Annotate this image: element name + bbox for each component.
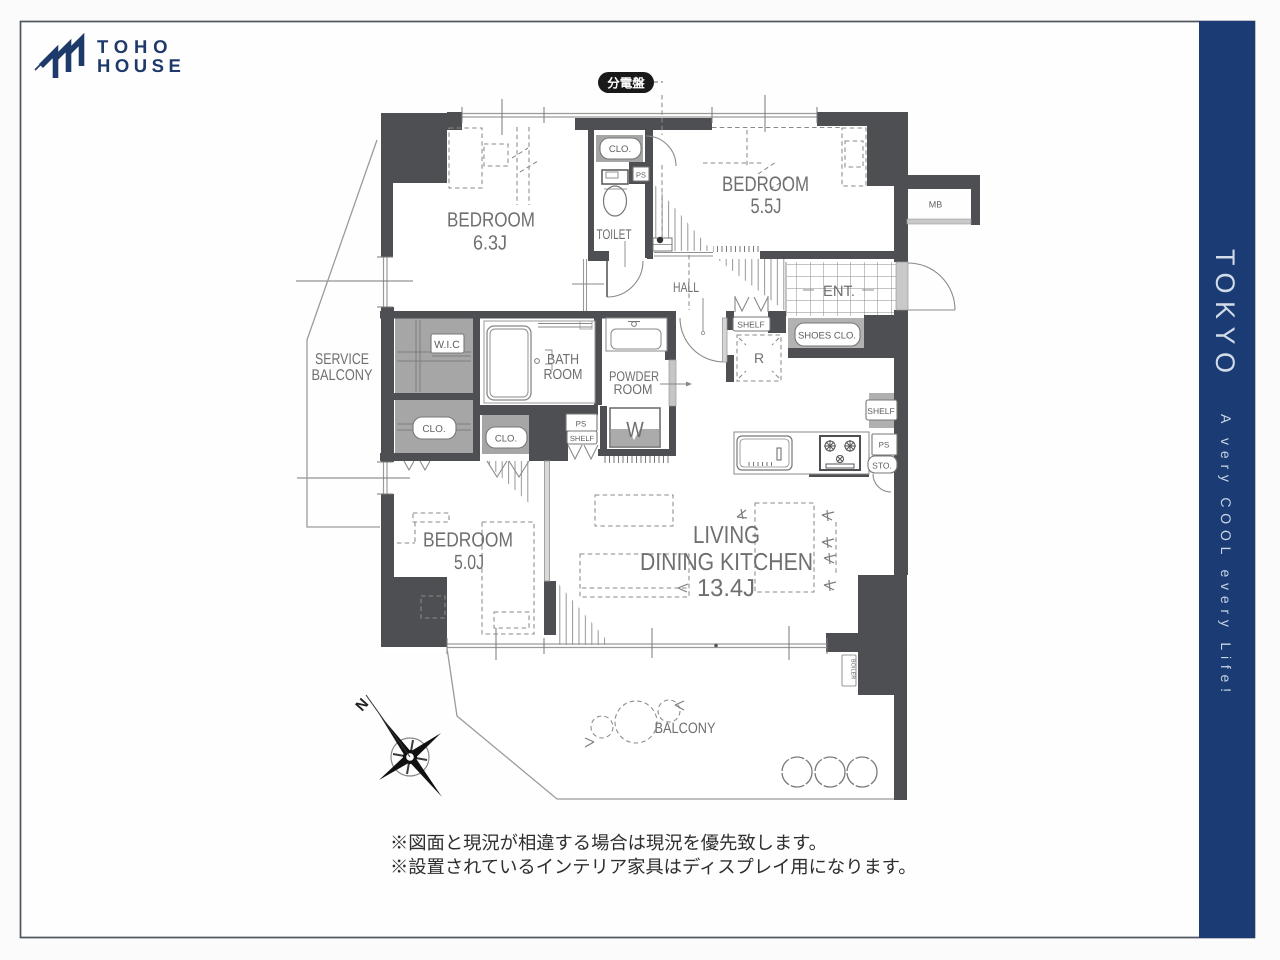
svg-text:BEDROOM: BEDROOM — [722, 173, 809, 196]
svg-text:HOUSE: HOUSE — [97, 55, 185, 76]
svg-text:MB: MB — [929, 200, 943, 210]
svg-text:SHOES CLO.: SHOES CLO. — [798, 331, 856, 342]
svg-text:ROOM: ROOM — [544, 367, 583, 383]
svg-text:SHELF: SHELF — [737, 320, 764, 330]
svg-text:BALCONY: BALCONY — [312, 367, 373, 384]
svg-text:13.4J: 13.4J — [697, 575, 755, 602]
svg-text:SHELF: SHELF — [867, 406, 894, 416]
svg-text:BATH: BATH — [547, 352, 579, 368]
svg-text:ROOM: ROOM — [614, 381, 653, 397]
svg-text:BEDROOM: BEDROOM — [423, 529, 513, 552]
svg-text:BEDROOM: BEDROOM — [447, 209, 535, 232]
svg-text:BOILER: BOILER — [850, 659, 856, 679]
svg-text:LIVING: LIVING — [693, 522, 760, 549]
svg-text:BALCONY: BALCONY — [655, 720, 716, 737]
svg-text:SERVICE: SERVICE — [315, 351, 369, 368]
svg-text:W.I.C: W.I.C — [434, 339, 460, 351]
svg-text:※設置されているインテリア家具はディスプレイ用になります。: ※設置されているインテリア家具はディスプレイ用になります。 — [390, 857, 917, 877]
svg-text:CLO.: CLO. — [609, 144, 631, 155]
svg-text:TOHO: TOHO — [97, 36, 173, 57]
svg-text:6.3J: 6.3J — [473, 232, 507, 255]
svg-text:DINING KITCHEN: DINING KITCHEN — [640, 549, 813, 576]
svg-text:CLO.: CLO. — [422, 424, 445, 435]
svg-text:STO.: STO. — [872, 461, 892, 471]
svg-text:CLO.: CLO. — [495, 434, 517, 445]
svg-text:HALL: HALL — [673, 279, 699, 295]
svg-text:PS: PS — [879, 441, 890, 450]
svg-text:TOILET: TOILET — [597, 226, 632, 242]
svg-text:PS: PS — [636, 171, 646, 180]
svg-text:※図面と現況が相違する場合は現況を優先致します。: ※図面と現況が相違する場合は現況を優先致します。 — [390, 833, 827, 853]
svg-text:A very COOL every Life!: A very COOL every Life! — [1218, 414, 1234, 698]
svg-text:分電盤: 分電盤 — [607, 77, 645, 91]
svg-text:PS: PS — [576, 420, 587, 429]
svg-text:ENT.: ENT. — [823, 283, 855, 300]
svg-text:5.0J: 5.0J — [454, 551, 484, 574]
svg-text:5.5J: 5.5J — [751, 195, 782, 218]
svg-text:TOKYO: TOKYO — [1210, 249, 1240, 381]
svg-text:SHELF: SHELF — [570, 434, 595, 443]
svg-text:R: R — [754, 350, 764, 366]
svg-text:W: W — [626, 417, 644, 442]
